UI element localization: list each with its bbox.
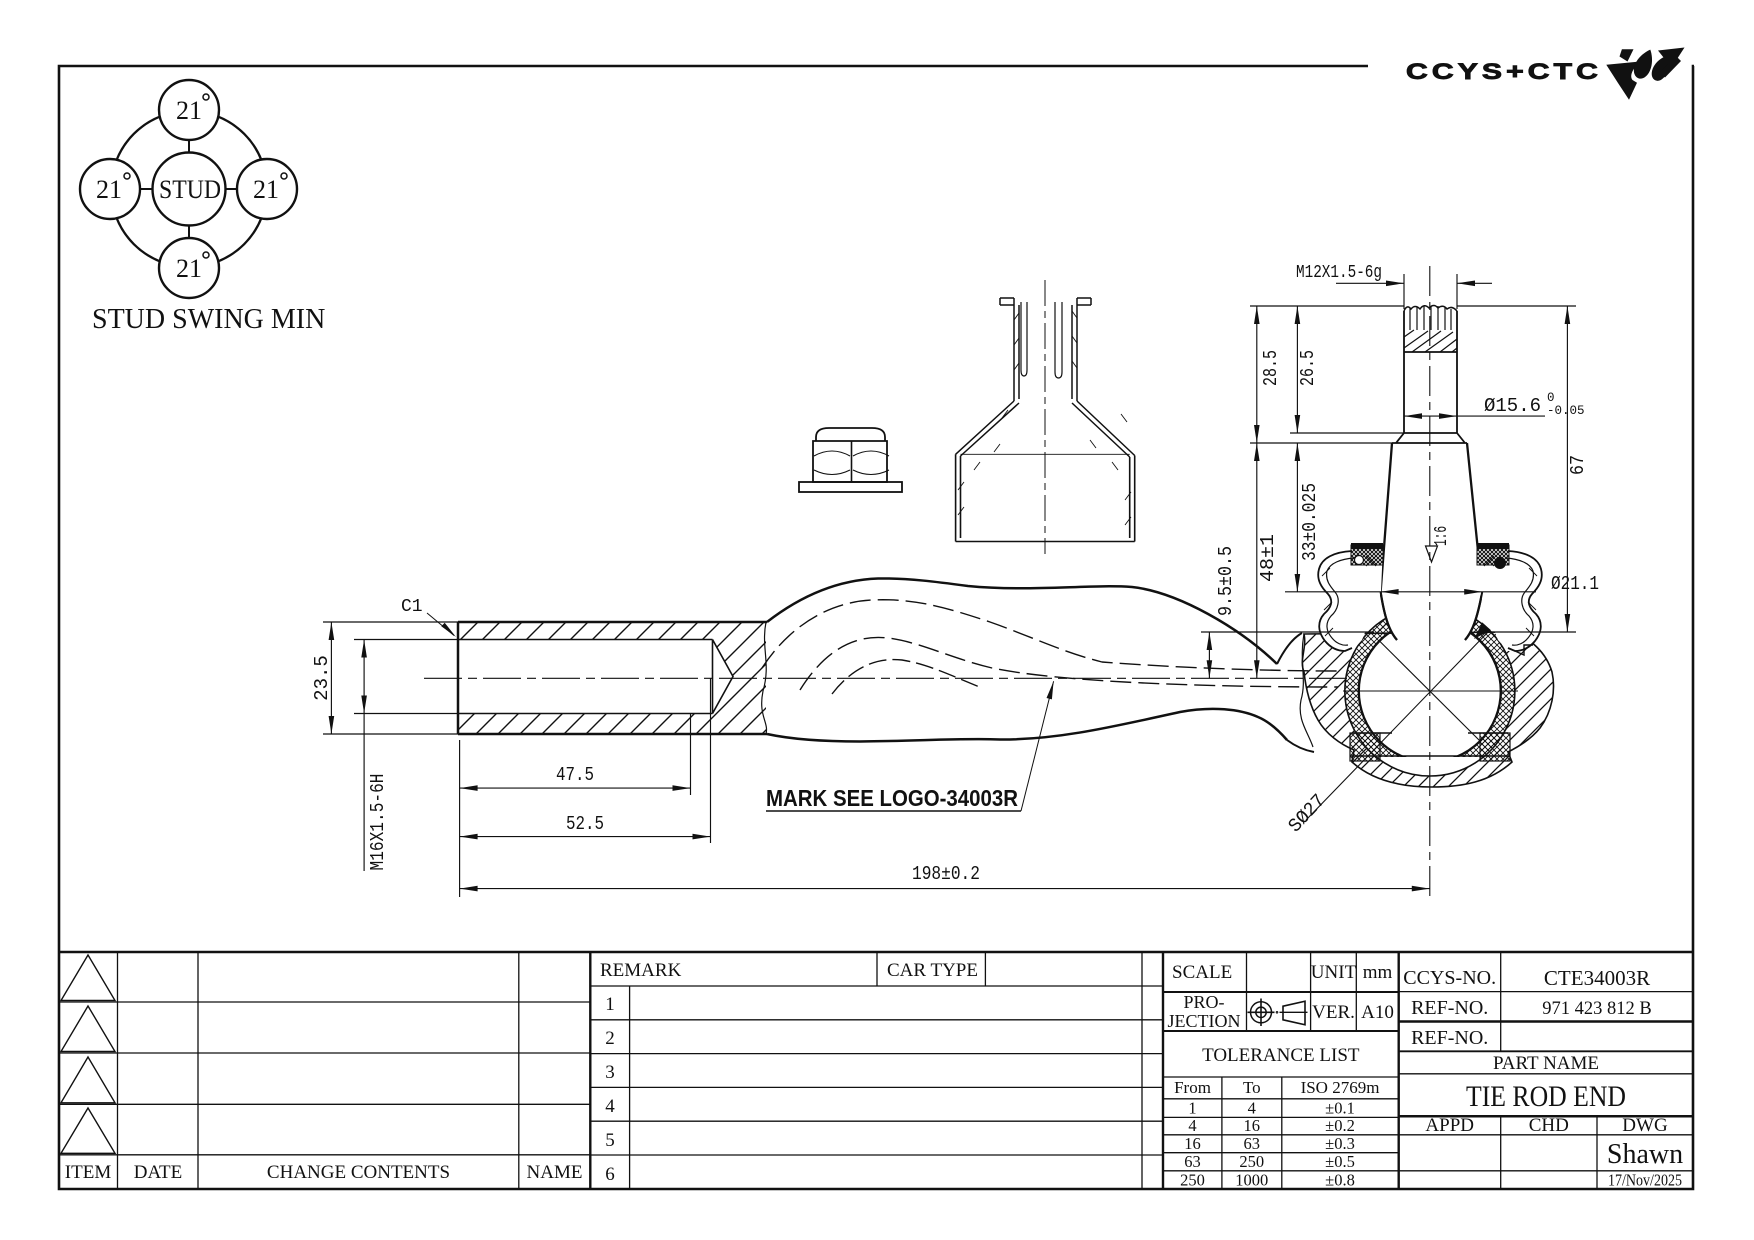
svg-text:16: 16 — [1184, 1134, 1201, 1153]
svg-text:Shawn: Shawn — [1607, 1139, 1683, 1170]
svg-text:47.5: 47.5 — [556, 764, 594, 786]
svg-text:CCYS+CTC: CCYS+CTC — [1406, 59, 1602, 84]
svg-text:3: 3 — [605, 1062, 615, 1083]
svg-text:4: 4 — [605, 1096, 615, 1117]
svg-text:250: 250 — [1239, 1152, 1264, 1171]
svg-text:TOLERANCE LIST: TOLERANCE LIST — [1202, 1045, 1360, 1066]
svg-text:STUD SWING MIN: STUD SWING MIN — [92, 304, 325, 335]
svg-text:CCYS-NO.: CCYS-NO. — [1403, 967, 1496, 989]
svg-text:±0.1: ±0.1 — [1325, 1099, 1355, 1118]
svg-text:21: 21 — [96, 175, 122, 204]
svg-text:TIE ROD END: TIE ROD END — [1466, 1080, 1626, 1113]
svg-text:63: 63 — [1244, 1134, 1261, 1153]
svg-text:To: To — [1243, 1078, 1261, 1097]
svg-text:STUD: STUD — [159, 175, 221, 204]
svg-text:21: 21 — [253, 175, 279, 204]
svg-text:CHD: CHD — [1529, 1115, 1569, 1136]
svg-text:28.5: 28.5 — [1260, 350, 1282, 386]
svg-text:REF-NO.: REF-NO. — [1411, 997, 1488, 1019]
svg-text:17/Nov/2025: 17/Nov/2025 — [1608, 1171, 1682, 1190]
svg-text:PART NAME: PART NAME — [1493, 1053, 1599, 1074]
svg-text:23.5: 23.5 — [311, 655, 333, 701]
svg-text:DATE: DATE — [134, 1162, 183, 1183]
svg-text:REMARK: REMARK — [600, 960, 682, 981]
svg-text:1: 1 — [1188, 1099, 1196, 1118]
svg-text:4: 4 — [1248, 1099, 1256, 1118]
svg-text:4: 4 — [1188, 1116, 1196, 1135]
svg-text:ITEM: ITEM — [65, 1162, 112, 1183]
svg-text:9.5±0.5: 9.5±0.5 — [1215, 546, 1237, 616]
svg-text:M12X1.5-6g: M12X1.5-6g — [1296, 263, 1382, 283]
svg-text:REF-NO.: REF-NO. — [1411, 1027, 1488, 1049]
svg-text:63: 63 — [1184, 1152, 1201, 1171]
svg-text:From: From — [1174, 1078, 1211, 1097]
svg-text:mm: mm — [1363, 962, 1393, 983]
svg-text:Ø21.1: Ø21.1 — [1551, 573, 1599, 595]
svg-text:NAME: NAME — [527, 1162, 583, 1183]
svg-text:971 423 812 B: 971 423 812 B — [1542, 999, 1651, 1019]
svg-text:±0.5: ±0.5 — [1325, 1152, 1355, 1171]
svg-text:6: 6 — [605, 1164, 615, 1185]
svg-text:21: 21 — [176, 254, 202, 283]
svg-text:APPD: APPD — [1425, 1115, 1474, 1136]
svg-text:±0.2: ±0.2 — [1325, 1116, 1355, 1135]
svg-text:VER.: VER. — [1312, 1002, 1355, 1023]
svg-text:52.5: 52.5 — [566, 813, 604, 835]
svg-text:33±0.025: 33±0.025 — [1299, 483, 1321, 561]
svg-text:M16X1.5-6H: M16X1.5-6H — [367, 774, 389, 871]
svg-text:250: 250 — [1180, 1171, 1205, 1190]
svg-text:±0.3: ±0.3 — [1325, 1134, 1355, 1153]
svg-text:1000: 1000 — [1235, 1171, 1268, 1190]
svg-text:Ø15.6: Ø15.6 — [1484, 395, 1541, 417]
svg-text:CHANGE CONTENTS: CHANGE CONTENTS — [267, 1162, 450, 1183]
svg-text:PRO-: PRO- — [1183, 992, 1224, 1012]
svg-text:198±0.2: 198±0.2 — [912, 863, 980, 885]
svg-text:0: 0 — [1547, 391, 1555, 405]
svg-text:21: 21 — [176, 96, 202, 125]
svg-text:ISO 2769m: ISO 2769m — [1301, 1078, 1380, 1097]
svg-text:JECTION: JECTION — [1168, 1011, 1241, 1031]
svg-text:1: 1 — [605, 994, 615, 1015]
svg-text:DWG: DWG — [1622, 1115, 1668, 1136]
svg-text:48±1: 48±1 — [1257, 534, 1279, 582]
svg-text:±0.8: ±0.8 — [1325, 1171, 1355, 1190]
svg-text:CAR TYPE: CAR TYPE — [887, 960, 978, 981]
svg-text:16: 16 — [1244, 1116, 1261, 1135]
svg-text:A10: A10 — [1361, 1002, 1394, 1023]
svg-text:CTE34003R: CTE34003R — [1544, 966, 1650, 990]
svg-text:2: 2 — [605, 1028, 615, 1049]
svg-text:-0.05: -0.05 — [1547, 404, 1585, 418]
svg-text:MARK SEE LOGO-34003R: MARK SEE LOGO-34003R — [766, 785, 1018, 811]
svg-text:UNIT: UNIT — [1311, 962, 1357, 983]
svg-text:1:6: 1:6 — [1432, 526, 1452, 546]
svg-text:26.5: 26.5 — [1297, 350, 1319, 386]
svg-text:C1: C1 — [401, 597, 423, 617]
svg-text:5: 5 — [605, 1130, 615, 1151]
svg-text:SCALE: SCALE — [1172, 962, 1232, 983]
svg-text:67: 67 — [1567, 455, 1589, 475]
